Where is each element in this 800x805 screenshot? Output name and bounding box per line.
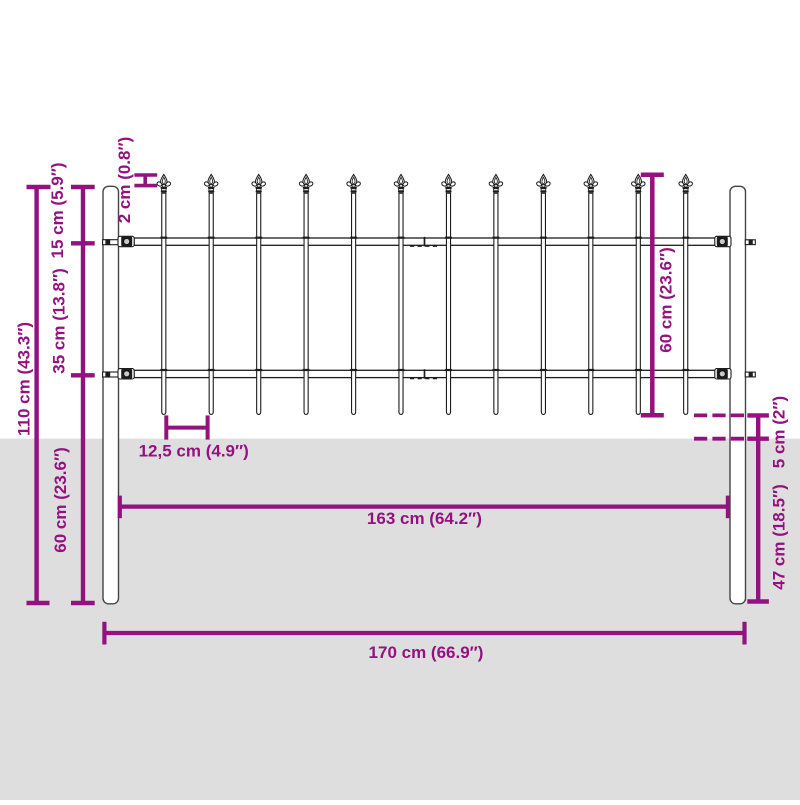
svg-text:35 cm (13.8″): 35 cm (13.8″) [50,268,69,373]
svg-text:5 cm (2″): 5 cm (2″) [770,396,789,468]
svg-text:47 cm (18.5″): 47 cm (18.5″) [770,484,789,589]
svg-text:2 cm (0.8″): 2 cm (0.8″) [115,137,134,224]
svg-text:12,5 cm (4.9″): 12,5 cm (4.9″) [139,441,249,460]
svg-text:110 cm (43.3″): 110 cm (43.3″) [15,322,34,436]
svg-text:15 cm (5.9″): 15 cm (5.9″) [48,162,67,258]
svg-text:170 cm (66.9″): 170 cm (66.9″) [369,643,484,662]
svg-text:60 cm (23.6″): 60 cm (23.6″) [51,447,70,552]
svg-text:60 cm (23.6″): 60 cm (23.6″) [657,247,676,352]
svg-text:163 cm (64.2″): 163 cm (64.2″) [367,509,482,528]
